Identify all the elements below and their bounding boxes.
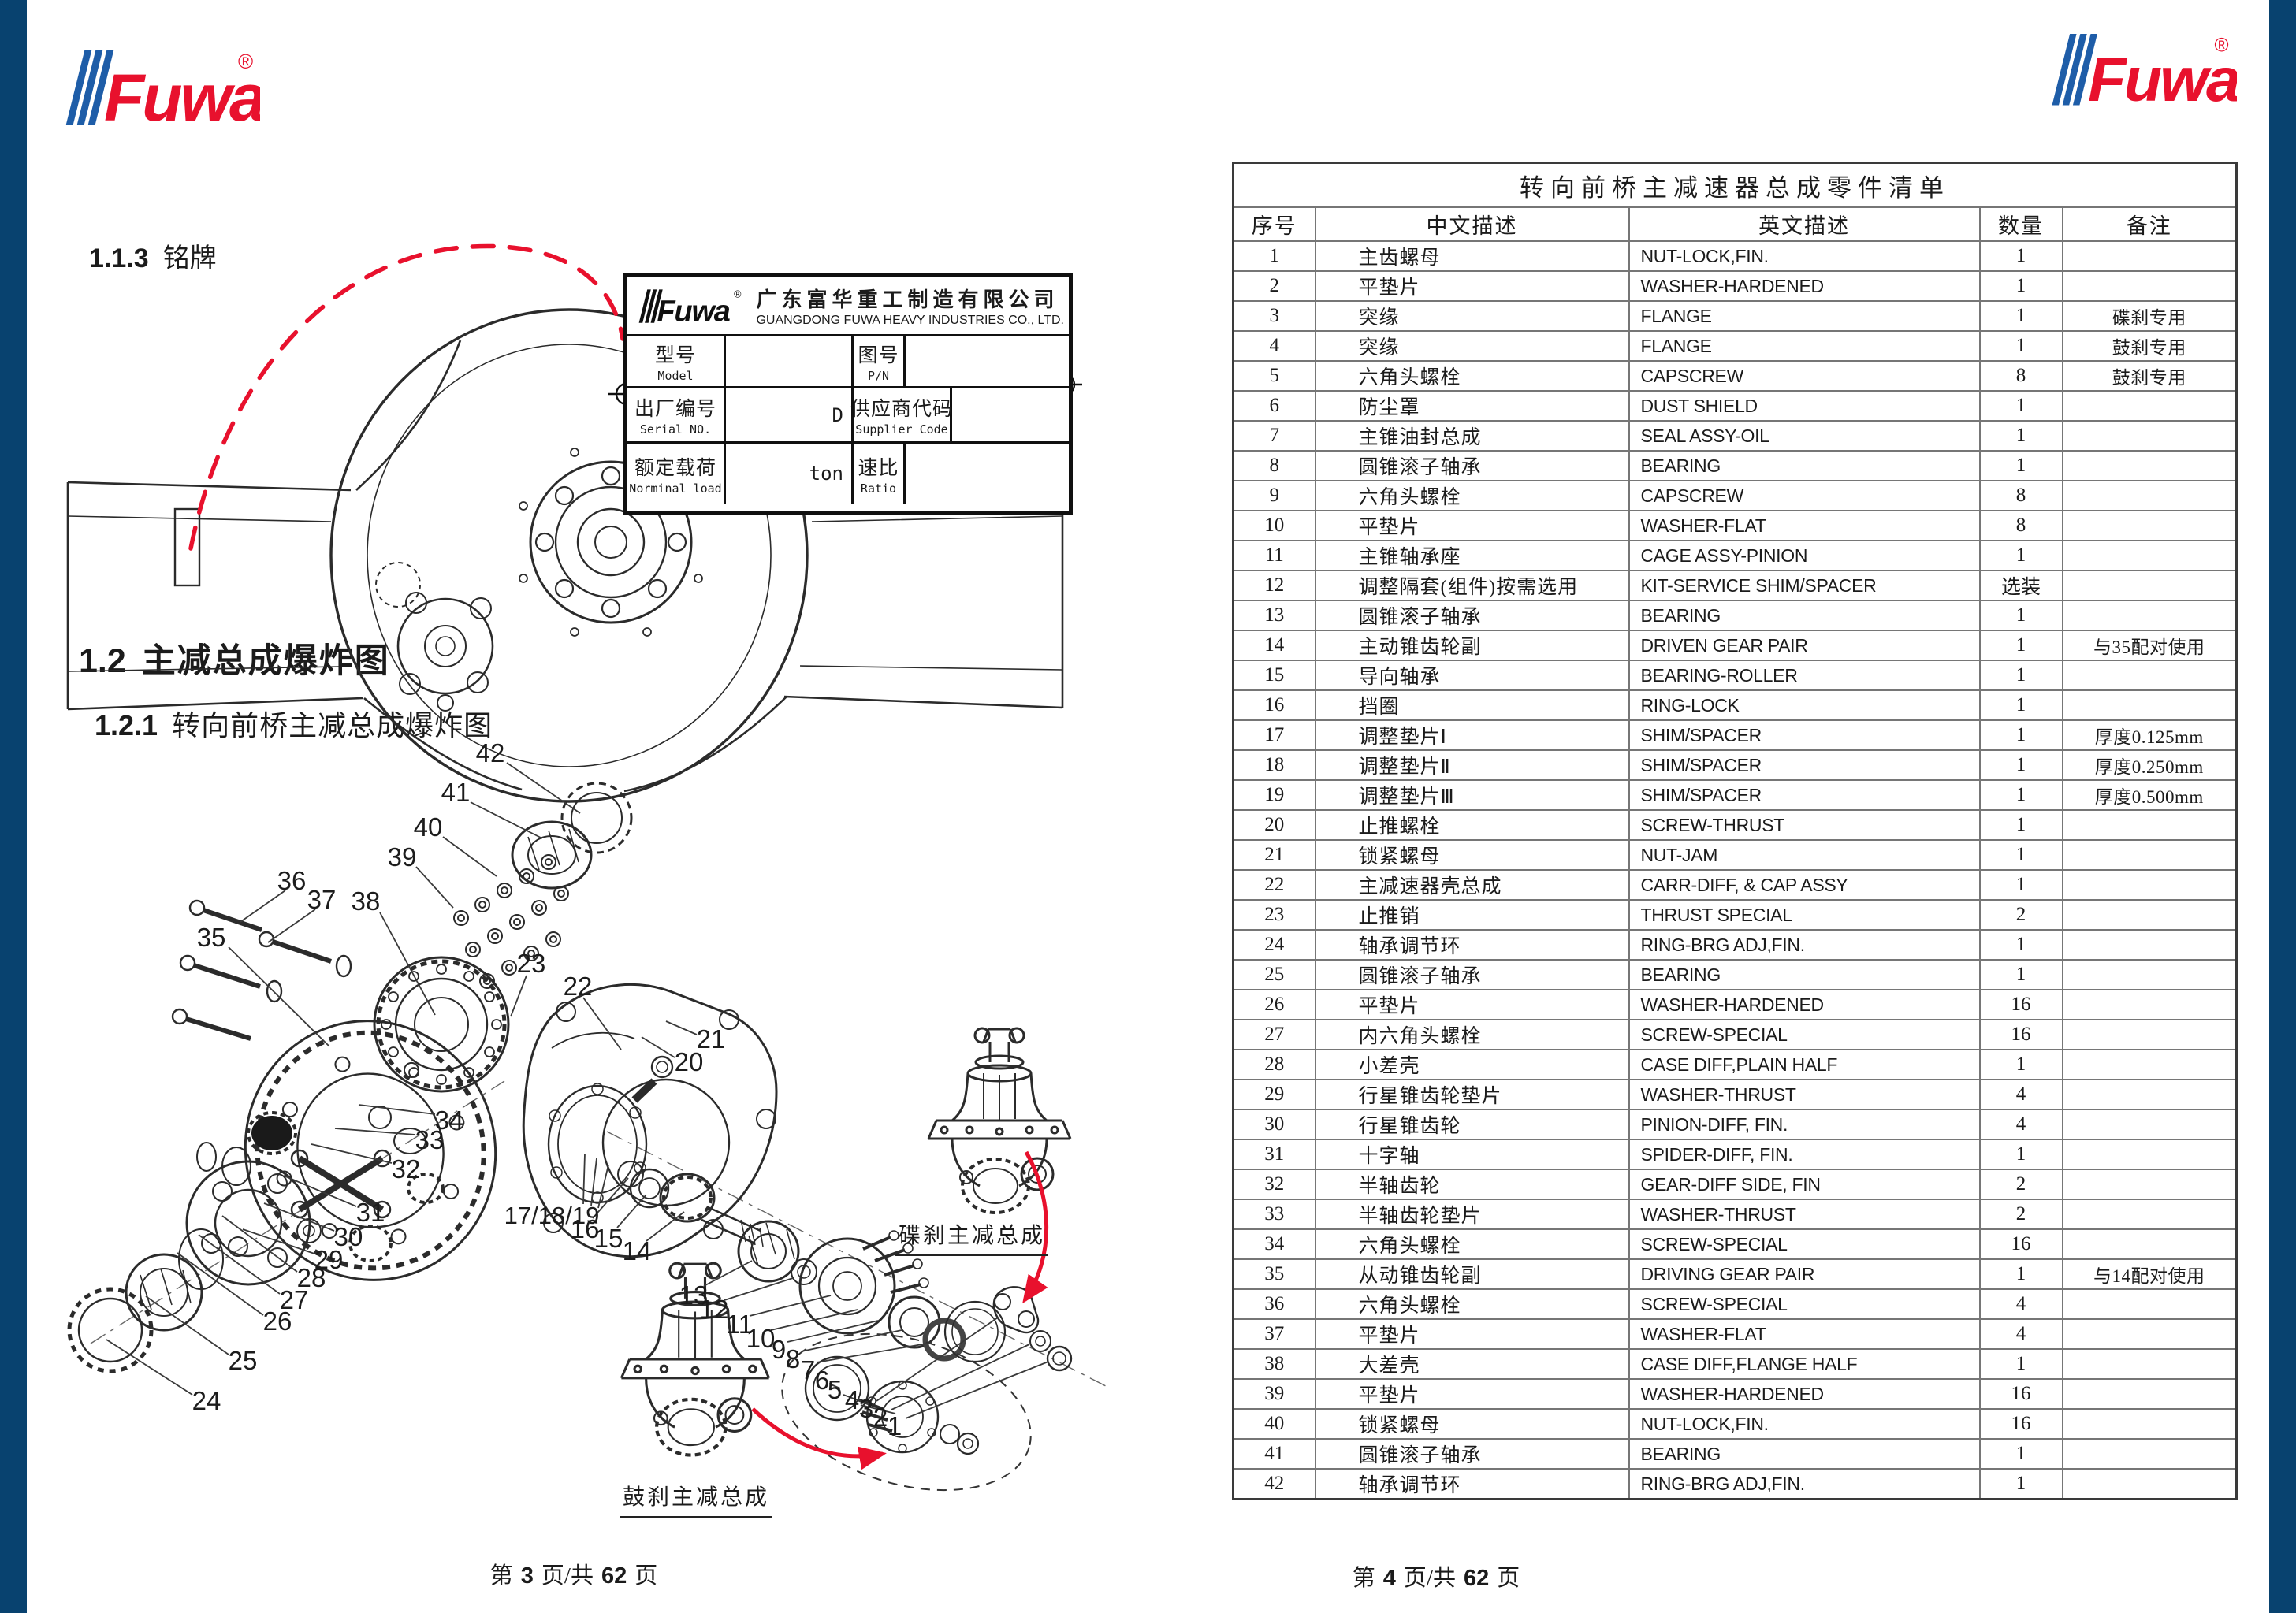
table-cell: 1 — [1980, 750, 2063, 780]
table-row: 36六角头螺栓SCREW-SPECIAL4 — [1234, 1289, 2237, 1319]
table-cell — [2063, 1050, 2237, 1080]
table-row: 38大差壳CASE DIFF,FLANGE HALF1 — [1234, 1349, 2237, 1379]
nameplate-field-label: 额定载荷Norminal load — [627, 444, 726, 504]
table-cell — [2063, 1319, 2237, 1349]
table-row: 17调整垫片ⅠSHIM/SPACER1厚度0.125mm — [1234, 720, 2237, 750]
table-cell: 圆锥滚子轴承 — [1315, 451, 1629, 481]
part-number-label: 24 — [192, 1386, 221, 1415]
table-cell: 28 — [1234, 1050, 1315, 1080]
part-number-label: 9 — [772, 1335, 786, 1364]
table-row: 25圆锥滚子轴承BEARING1 — [1234, 960, 2237, 990]
table-cell: GEAR-DIFF SIDE, FIN — [1629, 1169, 1980, 1199]
table-cell: 37 — [1234, 1319, 1315, 1349]
table-cell — [2063, 960, 2237, 990]
callout-drum-brake-assembly: 鼓刹主减总成 — [620, 1480, 772, 1518]
nameplate-row: 出厂编号Serial NO.D供应商代码Supplier Code — [627, 388, 1069, 444]
table-row: 30行星锥齿轮PINION-DIFF, FIN.4 — [1234, 1109, 2237, 1139]
footer-total-pages: 62 — [1464, 1566, 1489, 1591]
table-cell: CASE DIFF,PLAIN HALF — [1629, 1050, 1980, 1080]
table-cell: WASHER-FLAT — [1629, 511, 1980, 541]
table-cell: 1 — [1980, 1439, 2063, 1469]
leader-line — [583, 998, 621, 1050]
gasket-and-bearing — [549, 1083, 668, 1207]
part-number-label: 39 — [388, 842, 417, 872]
table-cell: RING-BRG ADJ,FIN. — [1629, 1469, 1980, 1500]
table-cell: WASHER-FLAT — [1629, 1319, 1980, 1349]
table-row: 9六角头螺栓CAPSCREW8 — [1234, 481, 2237, 511]
table-row: 41圆锥滚子轴承BEARING1 — [1234, 1439, 2237, 1469]
field-label-en: Ratio — [861, 481, 896, 496]
table-cell — [2063, 840, 2237, 870]
table-cell: 16 — [1980, 1020, 2063, 1050]
table-cell — [2063, 1469, 2237, 1500]
exploded-diagram — [69, 783, 1107, 1517]
table-cell: DUST SHIELD — [1629, 391, 1980, 421]
table-row: 23止推销THRUST SPECIAL2 — [1234, 900, 2237, 930]
table-row: 19调整垫片ⅢSHIM/SPACER1厚度0.500mm — [1234, 780, 2237, 810]
table-cell: SCREW-SPECIAL — [1629, 1289, 1980, 1319]
leader-line — [146, 1296, 229, 1355]
part-number-label: 33 — [415, 1125, 445, 1154]
leader-line — [443, 837, 497, 876]
table-cell: BEARING-ROLLER — [1629, 660, 1980, 690]
table-cell: 圆锥滚子轴承 — [1315, 960, 1629, 990]
table-cell: 主锥轴承座 — [1315, 541, 1629, 570]
field-unit-text: D — [832, 404, 843, 426]
table-cell — [2063, 900, 2237, 930]
washer-nut-cluster — [454, 855, 568, 988]
leader-line — [646, 1212, 684, 1241]
table-cell: KIT-SERVICE SHIM/SPACER — [1629, 570, 1980, 600]
part-number-label: 22 — [564, 972, 593, 1001]
table-cell: 34 — [1234, 1229, 1315, 1259]
table-cell: 与14配对使用 — [2063, 1259, 2237, 1289]
table-cell: 11 — [1234, 541, 1315, 570]
part-number-label: 26 — [263, 1306, 292, 1336]
table-cell: 33 — [1234, 1199, 1315, 1229]
table-cell: 17 — [1234, 720, 1315, 750]
table-cell: FLANGE — [1629, 301, 1980, 331]
table-cell: 鼓刹专用 — [2063, 331, 2237, 361]
diff-case-stack — [69, 1161, 310, 1371]
company-name-cn: 广东富华重工制造有限公司 — [756, 284, 1064, 313]
nameplate-field-label: 出厂编号Serial NO. — [627, 388, 726, 441]
nameplate-field-value — [906, 336, 1069, 386]
table-cell: 1 — [1980, 810, 2063, 840]
table-cell — [2063, 1439, 2237, 1469]
table-cell: 36 — [1234, 1289, 1315, 1319]
table-cell: 10 — [1234, 511, 1315, 541]
logo-wordmark: Fuwa — [657, 295, 730, 328]
table-cell: 内六角头螺栓 — [1315, 1020, 1629, 1050]
table-cell: 8 — [1980, 511, 2063, 541]
table-cell: 8 — [1234, 451, 1315, 481]
table-cell: 32 — [1234, 1169, 1315, 1199]
leader-line — [591, 1158, 597, 1206]
table-cell: WASHER-THRUST — [1629, 1080, 1980, 1109]
table-cell: 4 — [1980, 1109, 2063, 1139]
table-cell: PINION-DIFF, FIN. — [1629, 1109, 1980, 1139]
column-header: 序号 — [1234, 207, 1315, 241]
part-number-labels: 4241403938373635343332313029282726252423… — [192, 738, 902, 1440]
table-cell: SHIM/SPACER — [1629, 750, 1980, 780]
table-cell: 1 — [1980, 241, 2063, 271]
leader-line — [771, 1310, 858, 1330]
table-cell: 2 — [1980, 900, 2063, 930]
table-cell: 29 — [1234, 1080, 1315, 1109]
table-row: 40锁紧螺母NUT-LOCK,FIN.16 — [1234, 1409, 2237, 1439]
table-cell: 鼓刹专用 — [2063, 361, 2237, 391]
page-footer-left: 第3页/共62页 — [432, 1557, 716, 1590]
table-cell: 1 — [1980, 451, 2063, 481]
table-cell: CAPSCREW — [1629, 481, 1980, 511]
table-cell: 2 — [1980, 1169, 2063, 1199]
column-header: 数量 — [1980, 207, 2063, 241]
nameplate: Fuwa ® 广东富华重工制造有限公司 GUANGDONG FUWA HEAVY… — [623, 273, 1073, 515]
table-row: 14主动锥齿轮副DRIVEN GEAR PAIR1与35配对使用 — [1234, 630, 2237, 660]
table-cell — [2063, 1199, 2237, 1229]
table-row: 20止推螺栓SCREW-THRUST1 — [1234, 810, 2237, 840]
table-cell — [2063, 541, 2237, 570]
table-row: 33半轴齿轮垫片WASHER-THRUST2 — [1234, 1199, 2237, 1229]
table-cell: WASHER-HARDENED — [1629, 1379, 1980, 1409]
table-row: 21锁紧螺母NUT-JAM1 — [1234, 840, 2237, 870]
table-cell: 1 — [1980, 331, 2063, 361]
table-cell: 锁紧螺母 — [1315, 1409, 1629, 1439]
table-row: 35从动锥齿轮副DRIVING GEAR PAIR1与14配对使用 — [1234, 1259, 2237, 1289]
table-cell: 2 — [1980, 1199, 2063, 1229]
table-cell: 4 — [1980, 1289, 2063, 1319]
table-row: 12调整隔套(组件)按需选用KIT-SERVICE SHIM/SPACER选装 — [1234, 570, 2237, 600]
leader-line — [416, 867, 453, 908]
table-cell: 行星锥齿轮 — [1315, 1109, 1629, 1139]
table-cell: 16 — [1980, 1229, 2063, 1259]
table-cell: 22 — [1234, 870, 1315, 900]
red-dashed-locator-curve — [191, 246, 623, 548]
nameplate-header: Fuwa ® 广东富华重工制造有限公司 GUANGDONG FUWA HEAVY… — [627, 277, 1069, 336]
part-number-label: 37 — [307, 885, 337, 914]
table-cell: 1 — [1980, 1259, 2063, 1289]
table-cell: 小差壳 — [1315, 1050, 1629, 1080]
part-number-label: 42 — [476, 738, 505, 767]
nameplate-field-value — [952, 388, 1069, 441]
table-cell: BEARING — [1629, 600, 1980, 630]
table-cell: 从动锥齿轮副 — [1315, 1259, 1629, 1289]
table-cell: 3 — [1234, 301, 1315, 331]
page-footer-right: 第4页/共62页 — [1294, 1559, 1578, 1593]
table-cell: 圆锥滚子轴承 — [1315, 1439, 1629, 1469]
table-cell: NUT-LOCK,FIN. — [1629, 1409, 1980, 1439]
table-cell: 六角头螺栓 — [1315, 361, 1629, 391]
table-cell — [2063, 451, 2237, 481]
table-cell: SCREW-SPECIAL — [1629, 1229, 1980, 1259]
table-cell: 1 — [1980, 391, 2063, 421]
part-number-label: 4 — [845, 1385, 859, 1414]
footer-page-number: 3 — [521, 1563, 534, 1589]
table-row: 24轴承调节环RING-BRG ADJ,FIN.1 — [1234, 930, 2237, 960]
table-cell: 选装 — [1980, 570, 2063, 600]
field-label-cn: 额定载荷 — [634, 452, 716, 481]
part-number-label: 15 — [594, 1224, 623, 1253]
table-cell: 平垫片 — [1315, 271, 1629, 301]
table-row: 42轴承调节环RING-BRG ADJ,FIN.1 — [1234, 1469, 2237, 1500]
table-cell — [2063, 391, 2237, 421]
table-cell: 1 — [1980, 1139, 2063, 1169]
table-cell: 4 — [1980, 1319, 2063, 1349]
table-cell: 主减速器壳总成 — [1315, 870, 1629, 900]
table-cell: 39 — [1234, 1379, 1315, 1409]
table-cell: 轴承调节环 — [1315, 930, 1629, 960]
table-cell: 六角头螺栓 — [1315, 1229, 1629, 1259]
table-cell: CARR-DIFF, & CAP ASSY — [1629, 870, 1980, 900]
table-cell: SCREW-SPECIAL — [1629, 1020, 1980, 1050]
table-row: 5六角头螺栓CAPSCREW8鼓刹专用 — [1234, 361, 2237, 391]
callout-disc-brake-assembly: 碟刹主减总成 — [895, 1218, 1048, 1256]
table-cell: 六角头螺栓 — [1315, 481, 1629, 511]
table-cell — [2063, 271, 2237, 301]
table-cell: SEAL ASSY-OIL — [1629, 421, 1980, 451]
table-cell — [2063, 421, 2237, 451]
field-label-en: Supplier Code — [855, 422, 947, 437]
footer-text: 页 — [1497, 1566, 1520, 1591]
table-cell: 止推销 — [1315, 900, 1629, 930]
leader-line — [724, 1278, 793, 1300]
table-row: 2平垫片WASHER-HARDENED1 — [1234, 271, 2237, 301]
field-label-cn: 型号 — [655, 340, 696, 368]
table-cell: 平垫片 — [1315, 990, 1629, 1020]
table-cell: SHIM/SPACER — [1629, 780, 1980, 810]
table-cell: 42 — [1234, 1469, 1315, 1500]
table-cell: 41 — [1234, 1439, 1315, 1469]
table-cell: 1 — [1980, 660, 2063, 690]
table-cell: 1 — [1980, 541, 2063, 570]
drum-hub-detail — [764, 1307, 1049, 1517]
table-cell: 六角头螺栓 — [1315, 1289, 1629, 1319]
table-cell: 23 — [1234, 900, 1315, 930]
table-cell: SPIDER-DIFF, FIN. — [1629, 1139, 1980, 1169]
nameplate-row: 额定载荷Norminal loadton速比Ratio — [627, 444, 1069, 504]
table-cell: 6 — [1234, 391, 1315, 421]
table-row: 28小差壳CASE DIFF,PLAIN HALF1 — [1234, 1050, 2237, 1080]
table-row: 15导向轴承BEARING-ROLLER1 — [1234, 660, 2237, 690]
table-cell: 5 — [1234, 361, 1315, 391]
part-number-label: 1 — [888, 1411, 902, 1440]
table-cell: 7 — [1234, 421, 1315, 451]
table-cell: 行星锥齿轮垫片 — [1315, 1080, 1629, 1109]
table-cell: RING-BRG ADJ,FIN. — [1629, 930, 1980, 960]
part-number-label: 20 — [675, 1047, 704, 1076]
nameplate-location-rect — [175, 509, 199, 585]
table-row: 27内六角头螺栓SCREW-SPECIAL16 — [1234, 1020, 2237, 1050]
table-cell: 31 — [1234, 1139, 1315, 1169]
table-cell: WASHER-HARDENED — [1629, 271, 1980, 301]
leader-line — [642, 1037, 675, 1057]
table-cell: 圆锥滚子轴承 — [1315, 600, 1629, 630]
table-cell — [2063, 990, 2237, 1020]
table-cell: 轴承调节环 — [1315, 1469, 1629, 1500]
part-number-label: 14 — [623, 1236, 652, 1265]
table-cell — [2063, 511, 2237, 541]
table-cell: CAGE ASSY-PINION — [1629, 541, 1980, 570]
table-cell: 十字轴 — [1315, 1139, 1629, 1169]
part-number-label: 35 — [197, 923, 226, 952]
table-cell: 1 — [1980, 1349, 2063, 1379]
footer-page-number: 4 — [1383, 1566, 1396, 1591]
table-cell: 21 — [1234, 840, 1315, 870]
leader-line — [199, 1235, 280, 1294]
table-cell: 18 — [1234, 750, 1315, 780]
nameplate-field-label: 供应商代码Supplier Code — [854, 388, 952, 441]
table-cell: 与35配对使用 — [2063, 630, 2237, 660]
table-cell: RING-LOCK — [1629, 690, 1980, 720]
table-cell: DRIVING GEAR PAIR — [1629, 1259, 1980, 1289]
table-cell: 1 — [1980, 960, 2063, 990]
footer-total-pages: 62 — [601, 1563, 627, 1589]
table-cell: NUT-LOCK,FIN. — [1629, 241, 1980, 271]
table-cell: SCREW-THRUST — [1629, 810, 1980, 840]
table-cell: 1 — [1980, 690, 2063, 720]
table-cell — [2063, 1080, 2237, 1109]
table-cell: WASHER-HARDENED — [1629, 990, 1980, 1020]
table-cell: FLANGE — [1629, 331, 1980, 361]
table-cell: 主锥油封总成 — [1315, 421, 1629, 451]
yoke-group — [889, 1287, 1071, 1370]
table-cell: 1 — [1234, 241, 1315, 271]
table-cell: 1 — [1980, 870, 2063, 900]
table-cell: 38 — [1234, 1349, 1315, 1379]
field-label-en: Model — [657, 369, 693, 383]
part-number-label: 3 — [859, 1394, 873, 1423]
table-row: 31十字轴SPIDER-DIFF, FIN.1 — [1234, 1139, 2237, 1169]
nameplate-field-label: 速比Ratio — [854, 444, 906, 504]
table-cell: 13 — [1234, 600, 1315, 630]
table-cell: 止推螺栓 — [1315, 810, 1629, 840]
table-row: 11主锥轴承座CAGE ASSY-PINION1 — [1234, 541, 2237, 570]
table-cell: 24 — [1234, 930, 1315, 960]
table-cell: 8 — [1980, 361, 2063, 391]
table-cell: 16 — [1980, 1409, 2063, 1439]
part-number-label: 12 — [700, 1295, 729, 1324]
field-label-cn: 供应商代码 — [850, 393, 953, 422]
field-label-en: Serial NO. — [640, 422, 711, 437]
table-cell — [2063, 600, 2237, 630]
field-unit-text: ton — [809, 463, 843, 485]
table-cell: 1 — [1980, 1469, 2063, 1500]
table-cell: 导向轴承 — [1315, 660, 1629, 690]
table-cell: 2 — [1234, 271, 1315, 301]
table-cell: 27 — [1234, 1020, 1315, 1050]
table-row: 3突缘FLANGE1碟刹专用 — [1234, 301, 2237, 331]
table-cell — [2063, 1379, 2237, 1409]
table-cell: 大差壳 — [1315, 1349, 1629, 1379]
table-cell: 4 — [1234, 331, 1315, 361]
table-cell: 20 — [1234, 810, 1315, 840]
table-cell: 锁紧螺母 — [1315, 840, 1629, 870]
table-cell: CAPSCREW — [1629, 361, 1980, 391]
table-cell: BEARING — [1629, 451, 1980, 481]
field-label-cn: 图号 — [858, 340, 899, 368]
table-cell: 26 — [1234, 990, 1315, 1020]
nameplate-grid: 型号Model图号P/N出厂编号Serial NO.D供应商代码Supplier… — [627, 336, 1069, 504]
table-cell: 12 — [1234, 570, 1315, 600]
table-cell — [2063, 660, 2237, 690]
table-cell: CASE DIFF,FLANGE HALF — [1629, 1349, 1980, 1379]
table-cell: 防尘罩 — [1315, 391, 1629, 421]
table-cell: 突缘 — [1315, 331, 1629, 361]
nameplate-field-value: ton — [726, 444, 854, 504]
nameplate-fuwa-logo: Fuwa ® — [635, 281, 748, 331]
field-label-en: P/N — [868, 369, 889, 383]
table-row: 29行星锥齿轮垫片WASHER-THRUST4 — [1234, 1080, 2237, 1109]
footer-text: 页/共 — [1404, 1566, 1456, 1591]
table-cell — [2063, 1169, 2237, 1199]
table-cell: 15 — [1234, 660, 1315, 690]
table-row: 6防尘罩DUST SHIELD1 — [1234, 391, 2237, 421]
table-row: 34六角头螺栓SCREW-SPECIAL16 — [1234, 1229, 2237, 1259]
part-number-label: 23 — [517, 949, 546, 978]
table-cell: 半轴齿轮垫片 — [1315, 1199, 1629, 1229]
part-number-label: 5 — [828, 1375, 842, 1404]
table-cell: 厚度0.500mm — [2063, 780, 2237, 810]
field-label-cn: 速比 — [858, 452, 899, 481]
table-cell — [2063, 1409, 2237, 1439]
part-number-label: 8 — [786, 1344, 800, 1373]
table-cell: 调整垫片Ⅱ — [1315, 750, 1629, 780]
table-cell: 平垫片 — [1315, 1319, 1629, 1349]
table-cell — [2063, 690, 2237, 720]
part-number-label: 36 — [277, 866, 307, 895]
field-label-cn: 出厂编号 — [634, 393, 716, 422]
part-number-label: 25 — [229, 1346, 258, 1375]
table-row: 32半轴齿轮GEAR-DIFF SIDE, FIN2 — [1234, 1169, 2237, 1199]
table-cell — [2063, 1289, 2237, 1319]
part-number-label: 40 — [414, 812, 443, 842]
table-cell: 19 — [1234, 780, 1315, 810]
table-cell: WASHER-THRUST — [1629, 1199, 1980, 1229]
table-cell: 25 — [1234, 960, 1315, 990]
table-cell: 突缘 — [1315, 301, 1629, 331]
part-number-label: 7 — [801, 1355, 815, 1384]
leader-line — [511, 976, 527, 1016]
table-cell: THRUST SPECIAL — [1629, 900, 1980, 930]
table-cell: 8 — [1980, 481, 2063, 511]
table-cell: NUT-JAM — [1629, 840, 1980, 870]
table-cell: 1 — [1980, 630, 2063, 660]
footer-text: 第 — [1353, 1566, 1375, 1591]
column-header: 备注 — [2063, 207, 2237, 241]
table-cell: 主齿螺母 — [1315, 241, 1629, 271]
table-cell: 1 — [1980, 600, 2063, 630]
table-cell: 16 — [1980, 990, 2063, 1020]
table-cell: SHIM/SPACER — [1629, 720, 1980, 750]
footer-text: 页 — [634, 1563, 657, 1589]
parts-list-table: 转向前桥主减速器总成零件清单序号中文描述英文描述数量备注1主齿螺母NUT-LOC… — [1232, 162, 2238, 1500]
table-cell: 30 — [1234, 1109, 1315, 1139]
disc-assembly-inset — [928, 1028, 1070, 1213]
table-cell — [2063, 1020, 2237, 1050]
leader-line — [311, 1144, 392, 1163]
part-number-label: 2 — [873, 1403, 888, 1432]
table-cell — [2063, 481, 2237, 511]
registered-mark-icon: ® — [734, 288, 742, 299]
leader-line — [583, 1154, 585, 1204]
leader-line — [240, 890, 285, 922]
table-cell — [2063, 1109, 2237, 1139]
leader-line — [666, 1021, 697, 1035]
nameplate-field-value — [726, 336, 854, 386]
table-row: 37平垫片WASHER-FLAT4 — [1234, 1319, 2237, 1349]
column-header: 英文描述 — [1629, 207, 1980, 241]
